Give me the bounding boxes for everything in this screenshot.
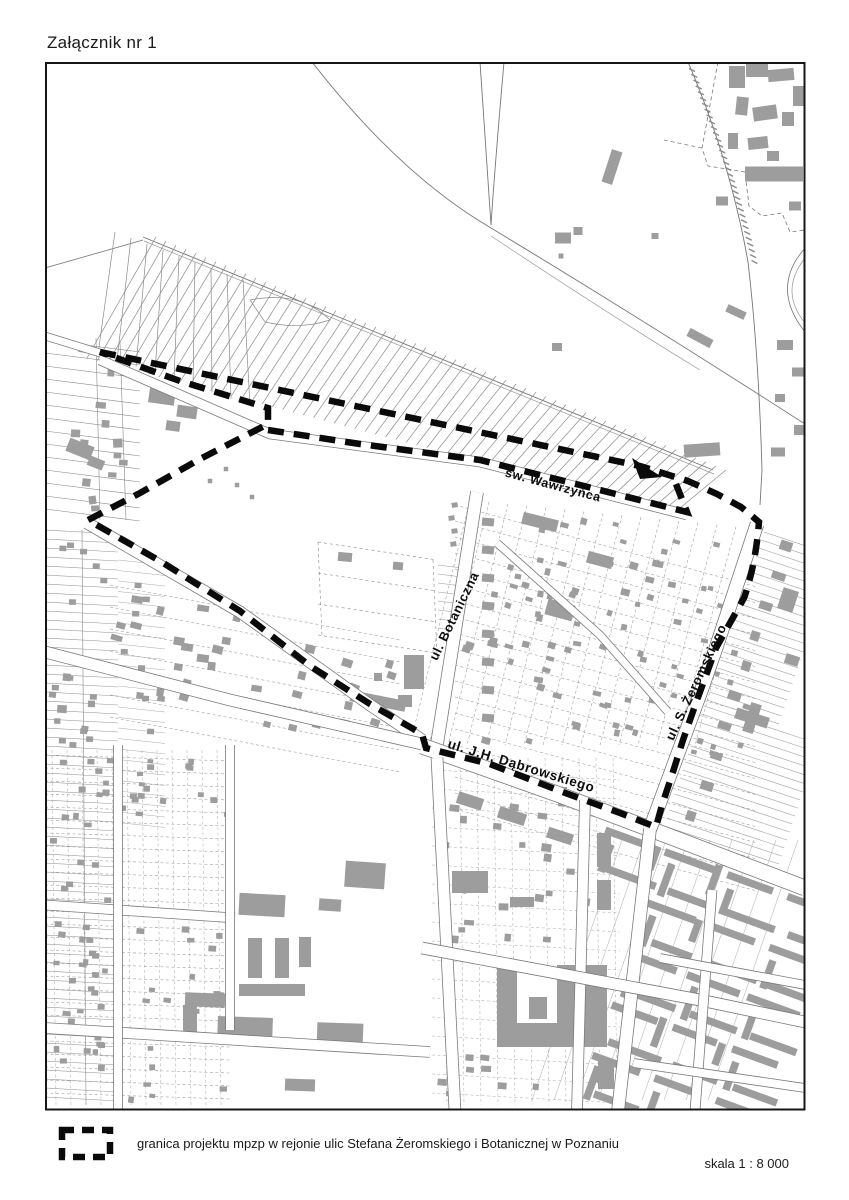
- legend: granica projektu mpzp w rejonie ulic Ste…: [55, 1124, 619, 1162]
- legend-label: granica projektu mpzp w rejonie ulic Ste…: [137, 1136, 619, 1151]
- scale-label: skala 1 : 8 000: [704, 1156, 789, 1171]
- attachment-page: Załącznik nr 1 św. Wawrzyńcaul. Botanicz…: [0, 0, 849, 1200]
- page-title: Załącznik nr 1: [47, 33, 157, 53]
- city-plan-map: św. Wawrzyńcaul. Botanicznaul. J.H. Dąbr…: [45, 62, 806, 1111]
- boundary-dash-symbol-icon: [55, 1124, 117, 1162]
- map-frame: św. Wawrzyńcaul. Botanicznaul. J.H. Dąbr…: [45, 62, 806, 1111]
